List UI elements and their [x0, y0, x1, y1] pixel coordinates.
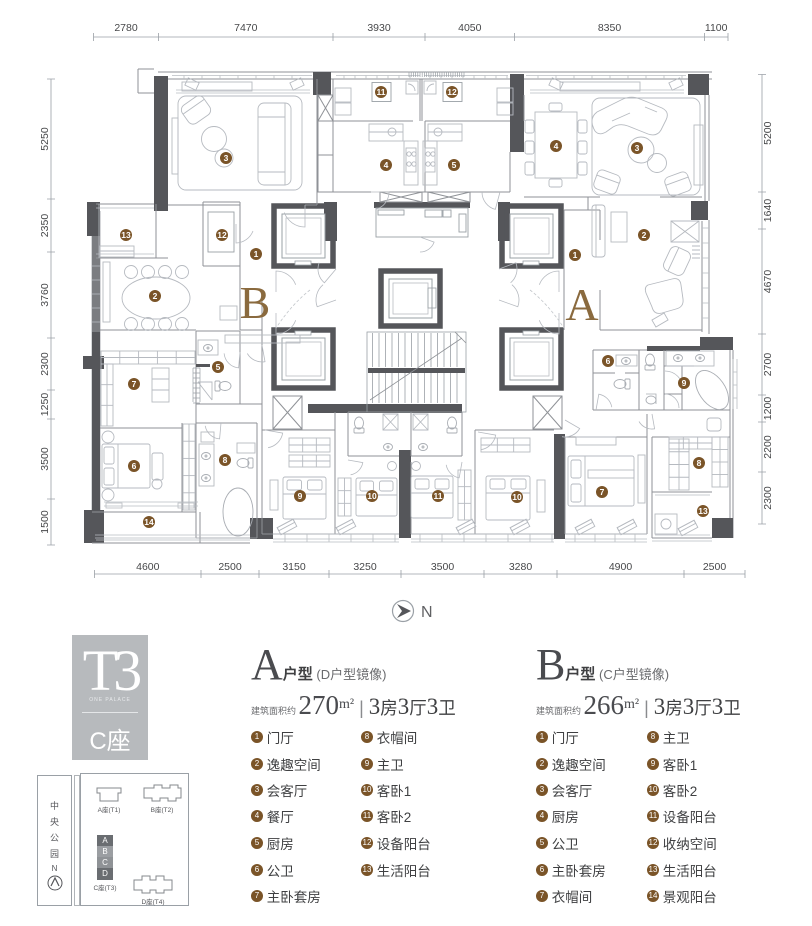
svg-text:1640: 1640 — [762, 199, 774, 223]
svg-text:6: 6 — [606, 356, 611, 366]
svg-text:7: 7 — [132, 379, 137, 389]
svg-text:3930: 3930 — [367, 22, 391, 34]
svg-text:8: 8 — [223, 455, 228, 465]
svg-text:2500: 2500 — [703, 561, 727, 573]
svg-text:4050: 4050 — [458, 22, 482, 34]
svg-text:8350: 8350 — [598, 22, 622, 34]
svg-text:B: B — [240, 277, 271, 328]
svg-text:13: 13 — [698, 506, 708, 516]
svg-text:7470: 7470 — [234, 22, 258, 34]
svg-text:6: 6 — [132, 461, 137, 471]
svg-text:A: A — [565, 279, 598, 330]
svg-text:10: 10 — [512, 492, 522, 502]
svg-text:1500: 1500 — [39, 510, 51, 534]
svg-text:2300: 2300 — [762, 486, 774, 510]
svg-text:2: 2 — [153, 291, 158, 301]
svg-text:4670: 4670 — [762, 270, 774, 294]
svg-text:1250: 1250 — [39, 393, 51, 417]
svg-text:N: N — [421, 604, 433, 621]
svg-text:4: 4 — [554, 141, 559, 151]
svg-text:9: 9 — [298, 491, 303, 501]
svg-text:11: 11 — [377, 87, 386, 97]
svg-text:2: 2 — [642, 230, 647, 240]
svg-text:4600: 4600 — [136, 561, 160, 573]
svg-text:5: 5 — [452, 160, 457, 170]
svg-text:2200: 2200 — [762, 435, 774, 459]
svg-text:1: 1 — [254, 249, 259, 259]
svg-text:13: 13 — [121, 230, 131, 240]
svg-text:5250: 5250 — [39, 127, 51, 151]
svg-text:3760: 3760 — [39, 283, 51, 307]
svg-text:5: 5 — [216, 362, 221, 372]
svg-text:3150: 3150 — [282, 561, 306, 573]
svg-text:14: 14 — [144, 517, 154, 527]
svg-text:4: 4 — [384, 160, 389, 170]
svg-text:2300: 2300 — [39, 352, 51, 376]
svg-text:5200: 5200 — [762, 121, 774, 145]
svg-text:11: 11 — [434, 491, 443, 501]
svg-text:7: 7 — [600, 487, 605, 497]
svg-text:2500: 2500 — [218, 561, 242, 573]
svg-text:10: 10 — [367, 491, 377, 501]
svg-text:2780: 2780 — [114, 22, 138, 34]
svg-text:1: 1 — [573, 250, 578, 260]
svg-text:3500: 3500 — [431, 561, 455, 573]
svg-text:1200: 1200 — [762, 397, 774, 421]
svg-text:3: 3 — [224, 153, 229, 163]
svg-text:2700: 2700 — [762, 353, 774, 377]
svg-text:3280: 3280 — [509, 561, 533, 573]
svg-text:1100: 1100 — [705, 22, 728, 34]
svg-text:12: 12 — [447, 87, 457, 97]
svg-text:3500: 3500 — [39, 447, 51, 471]
svg-text:8: 8 — [697, 458, 702, 468]
svg-text:2350: 2350 — [39, 214, 51, 238]
svg-text:9: 9 — [682, 378, 687, 388]
svg-text:3250: 3250 — [353, 561, 377, 573]
svg-text:4900: 4900 — [609, 561, 633, 573]
svg-text:3: 3 — [635, 143, 640, 153]
svg-text:12: 12 — [217, 230, 227, 240]
